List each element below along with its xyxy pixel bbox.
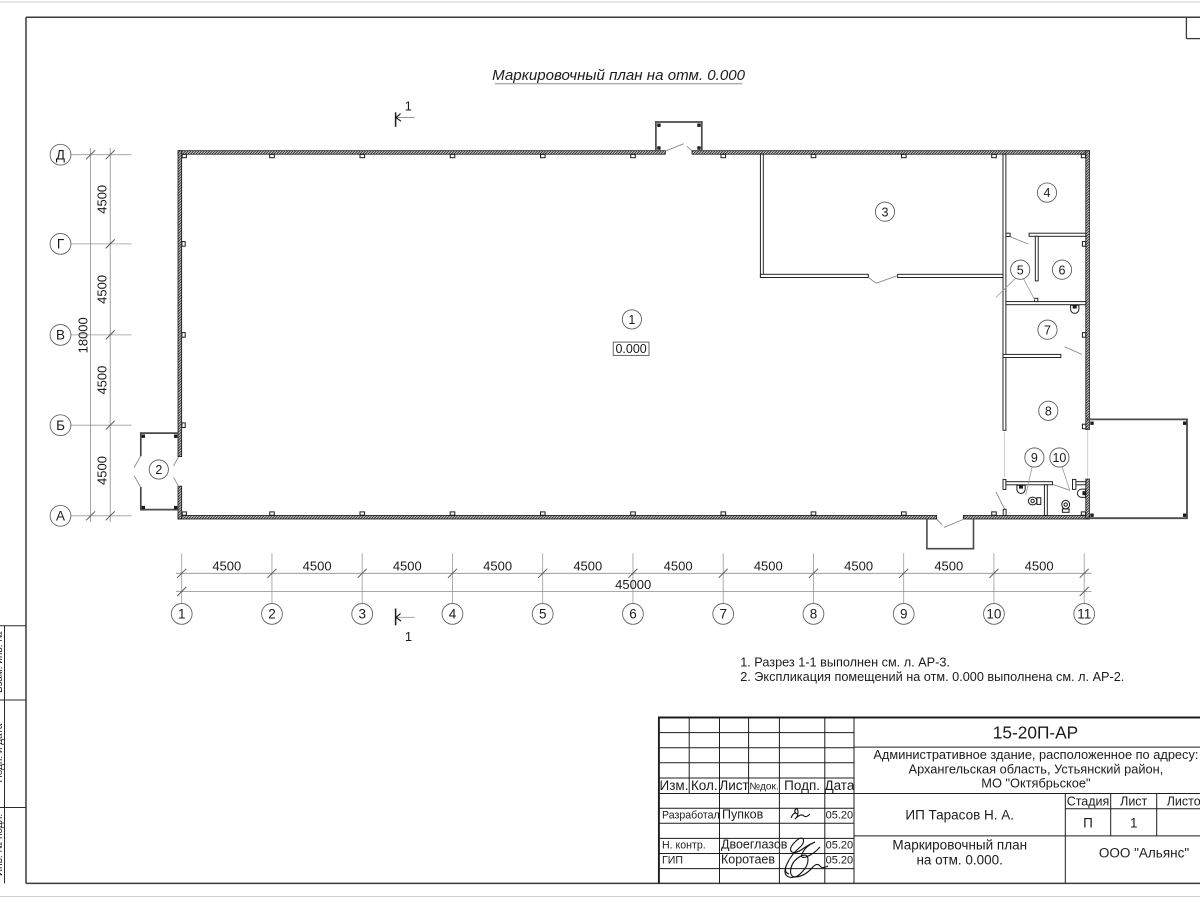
svg-text:1: 1 [178,607,186,622]
svg-text:4500: 4500 [95,275,110,304]
svg-text:МО "Октябрьское": МО "Октябрьское" [981,776,1090,791]
svg-text:45000: 45000 [615,577,651,592]
svg-text:на отм. 0.000.: на отм. 0.000. [916,852,1002,867]
svg-text:10: 10 [1052,451,1066,465]
svg-text:Маркировочный план на отм. 0.0: Маркировочный план на отм. 0.000 [492,67,745,84]
svg-text:15-20П-АР: 15-20П-АР [993,723,1078,743]
svg-text:4500: 4500 [95,366,110,395]
svg-text:2. Экспликация помещений на от: 2. Экспликация помещений на отм. 0.000 в… [740,670,1124,684]
svg-text:Дата: Дата [824,778,854,793]
svg-text:1: 1 [1130,816,1138,831]
svg-text:Пупков: Пупков [722,807,764,821]
svg-text:Административное здание, распо: Административное здание, расположенное п… [873,747,1198,762]
svg-text:Маркировочный план: Маркировочный план [892,837,1027,852]
svg-text:ИП Тарасов Н. А.: ИП Тарасов Н. А. [905,808,1014,823]
svg-text:Разработал: Разработал [662,809,720,821]
svg-text:1: 1 [405,99,412,114]
svg-text:6: 6 [629,607,637,622]
svg-text:5: 5 [1017,263,1024,277]
svg-text:А: А [56,509,65,524]
svg-text:18000: 18000 [75,317,90,353]
svg-text:05.20: 05.20 [826,809,854,821]
svg-text:4500: 4500 [1025,559,1054,574]
svg-text:Лист: Лист [1120,795,1147,809]
svg-text:Н. контр.: Н. контр. [662,839,706,851]
svg-text:4: 4 [1044,186,1051,200]
svg-text:Лист: Лист [719,778,748,793]
svg-text:Г: Г [57,237,65,252]
svg-text:1: 1 [628,313,635,327]
svg-text:Коротаев: Коротаев [721,853,775,867]
svg-text:Двоеглазов: Двоеглазов [721,838,788,852]
svg-text:9: 9 [1031,451,1038,465]
svg-text:2: 2 [155,463,162,477]
svg-text:В: В [56,328,65,343]
svg-text:8: 8 [810,607,818,622]
svg-text:10: 10 [986,607,1001,622]
svg-text:8: 8 [1045,404,1052,418]
svg-text:1: 1 [405,629,412,644]
svg-text:Д: Д [56,148,65,163]
svg-text:Изм.: Изм. [660,778,689,793]
svg-text:4500: 4500 [95,456,110,485]
svg-text:05.20: 05.20 [826,839,854,851]
svg-text:0.000: 0.000 [615,342,646,356]
svg-text:Архангельская область, Устьянс: Архангельская область, Устьянский район, [909,762,1164,777]
svg-text:П: П [1083,816,1093,831]
svg-text:Кол.: Кол. [691,778,718,793]
svg-text:Листов: Листов [1167,795,1200,809]
svg-text:4500: 4500 [844,559,873,574]
svg-text:11: 11 [1077,607,1091,622]
svg-text:3: 3 [882,205,889,219]
svg-text:Б: Б [56,418,65,433]
svg-text:4500: 4500 [303,559,332,574]
svg-text:Инв. № подл.: Инв. № подл. [0,814,5,876]
svg-text:4500: 4500 [754,559,783,574]
svg-text:4500: 4500 [934,559,963,574]
svg-text:7: 7 [719,607,727,622]
svg-text:№док.: №док. [749,781,778,792]
svg-text:4500: 4500 [573,559,602,574]
svg-text:9: 9 [900,607,908,622]
svg-text:6: 6 [1059,263,1066,277]
svg-text:Стадия: Стадия [1067,795,1110,809]
svg-text:2: 2 [268,607,276,622]
svg-text:4500: 4500 [664,559,693,574]
svg-text:5: 5 [539,607,547,622]
svg-text:Взам. инв. №: Взам. инв. № [0,631,5,693]
svg-text:ГИП: ГИП [662,854,683,866]
svg-text:7: 7 [1044,323,1051,337]
svg-text:3: 3 [358,607,366,622]
svg-text:Подп.: Подп. [784,778,820,793]
svg-text:4: 4 [449,607,457,622]
svg-text:1. Разрез 1-1 выполнен см. л.: 1. Разрез 1-1 выполнен см. л. АР-3. [740,656,950,670]
svg-text:05.20: 05.20 [826,854,854,866]
svg-text:ООО "Альянс": ООО "Альянс" [1099,846,1189,861]
svg-text:4500: 4500 [95,185,110,214]
svg-text:4500: 4500 [212,559,241,574]
svg-text:4500: 4500 [483,559,512,574]
svg-text:Подп. и дата: Подп. и дата [0,723,5,782]
svg-text:4500: 4500 [393,559,422,574]
